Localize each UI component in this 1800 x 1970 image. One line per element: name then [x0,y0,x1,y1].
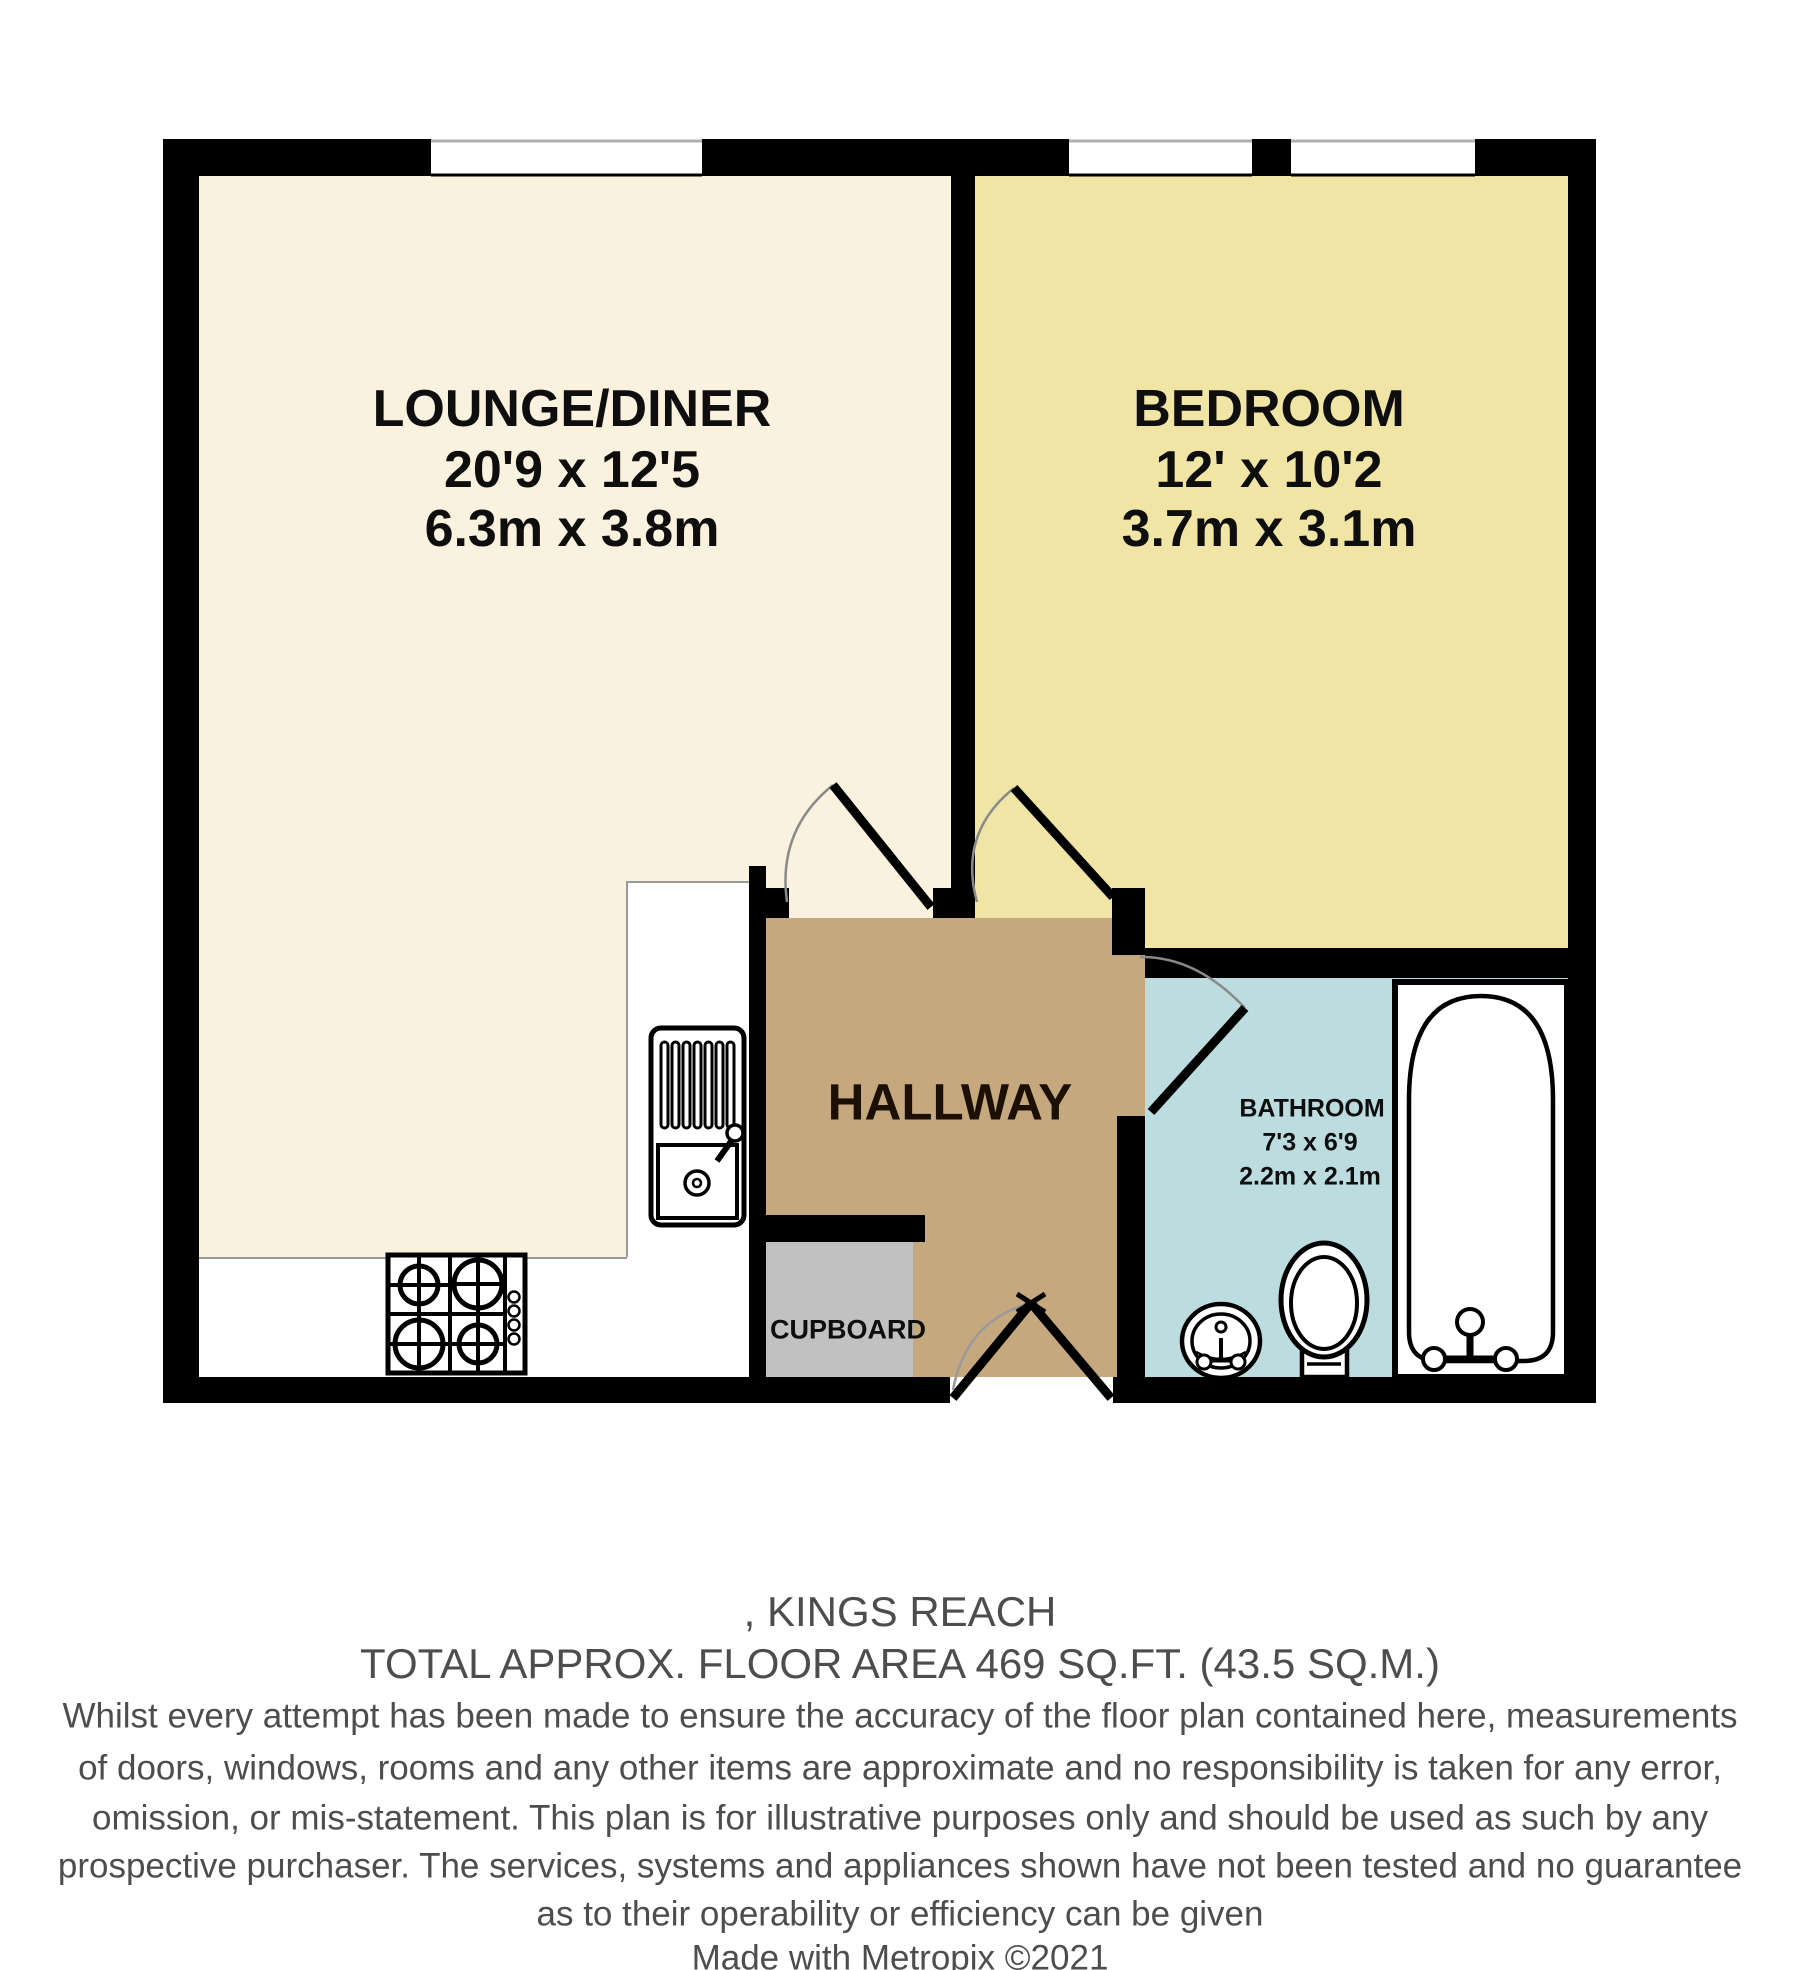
cupboard-label: CUPBOARD [770,1317,926,1344]
cupboard-floor [766,1242,913,1377]
gas-hob [388,1255,525,1373]
lounge-label-metric: 6.3m x 3.8m [425,503,720,555]
sink-tap-handle [727,1125,743,1141]
wall-hallway-left [749,866,766,1403]
toilet-bowl [1281,1243,1367,1357]
wall-lounge-bedroom-divider [951,176,975,918]
wall-hallway-hinge-block [933,888,975,918]
lounge-label-name: LOUNGE/DINER [373,383,772,435]
lounge-window [431,139,702,176]
hallway-floor-doorway-patch [1117,955,1145,1116]
wall-left [163,139,199,1403]
bedroom-floor [975,176,1568,948]
basin-tap-knob [1231,1355,1245,1369]
wall-top-segment [702,139,1069,176]
footer-disclaimer-5: as to their operability or efficiency ca… [537,1897,1264,1932]
wall-bottom-segment [1113,1377,1596,1403]
wall-cupboard-top [749,1215,925,1242]
wall-hallway-top-right-corner [1112,888,1145,955]
bedroom-label-metric: 3.7m x 3.1m [1122,503,1417,555]
bathroom-label-imperial: 7'3 x 6'9 [1262,1131,1357,1156]
bathroom-label-name: BATHROOM [1239,1097,1384,1122]
footer-disclaimer-3: omission, or mis-statement. This plan is… [92,1801,1708,1836]
footer-credit: Made with Metropix ©2021 [692,1941,1109,1970]
basin-tap-knob [1197,1355,1211,1369]
wall-hallway-right-lower [1117,1116,1145,1403]
hallway-label: HALLWAY [828,1077,1073,1128]
wall-bedroom-bathroom [1145,948,1596,978]
bath-tap-knob [1495,1348,1517,1370]
bathroom-label-metric: 2.2m x 2.1m [1239,1165,1381,1190]
bath-tap-knob [1423,1348,1445,1370]
bath [1395,982,1567,1377]
floorplan-page: LOUNGE/DINER 20'9 x 12'5 6.3m x 3.8m BED… [0,0,1800,1970]
bedroom-window [1291,139,1475,176]
bath-tub-inner [1409,996,1553,1361]
sink-bowl [658,1145,737,1218]
footer-disclaimer-1: Whilst every attempt has been made to en… [62,1699,1737,1734]
footer-disclaimer-4: prospective purchaser. The services, sys… [58,1849,1742,1884]
wash-basin [1182,1304,1260,1378]
wall-top-segment [1252,139,1291,176]
bedroom-label-imperial: 12' x 10'2 [1155,444,1382,496]
footer-disclaimer-2: of doors, windows, rooms and any other i… [78,1751,1722,1786]
wall-top-segment [163,139,431,176]
bedroom-label-name: BEDROOM [1133,383,1405,435]
wall-right [1568,139,1596,1403]
footer-address: , KINGS REACH [744,1591,1057,1633]
footer-area: TOTAL APPROX. FLOOR AREA 469 SQ.FT. (43.… [360,1643,1440,1685]
wall-bottom-segment [163,1377,950,1403]
lounge-label-imperial: 20'9 x 12'5 [444,444,700,496]
kitchen-sink-unit [651,1028,744,1225]
bedroom-window [1069,139,1252,176]
bath-drain [1457,1309,1483,1335]
